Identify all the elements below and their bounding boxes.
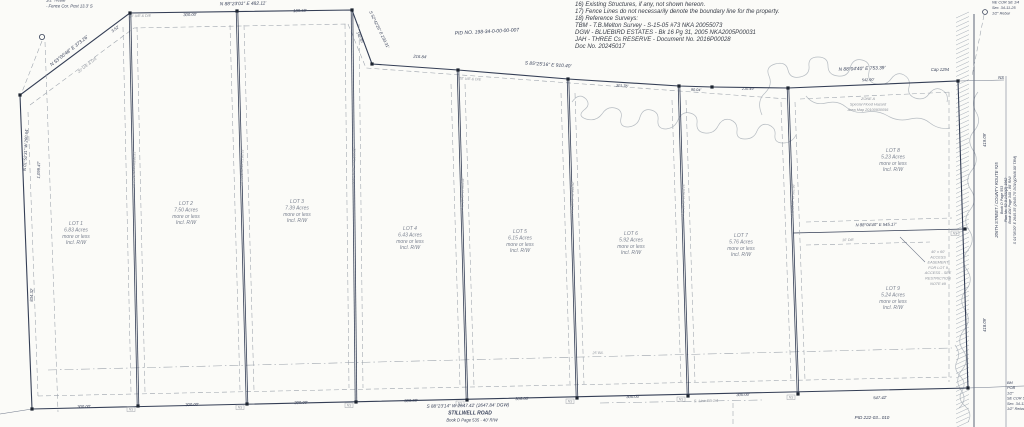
lot-label-lot-2: more or less: [172, 214, 200, 220]
survey-note-line: 17) Fence Lines do not necessarily denot…: [575, 9, 779, 15]
top-left-corner-note: - Fence Cor. Post 13.3' S: [46, 4, 93, 9]
corner-dot: [370, 62, 373, 65]
corner-dot: [963, 227, 966, 230]
lot-divider-line: [459, 70, 468, 400]
corner-dot: [566, 77, 569, 80]
lot-divider-line: [680, 86, 689, 396]
divider-bearing-label: N 01°36'46" W 1,161.21': [131, 151, 136, 188]
easement-label: 20' U/E & D/E: [76, 56, 98, 74]
monument-label: Cap 1294: [931, 67, 950, 72]
easement-dashed-lines: [28, 24, 952, 427]
ns-tag: NS: [129, 408, 134, 412]
survey-plat-canvas: PID NO. 198-34-0-00-00-007N 53°00'48" E …: [0, 0, 1024, 427]
building-line-label: 25' B/L: [591, 351, 603, 355]
ns-tag: NS: [679, 398, 684, 402]
plat-drawing: PID NO. 198-34-0-00-00-007N 53°00'48" E …: [0, 0, 1024, 427]
distance-label: 300.00': [404, 398, 418, 403]
lot-label-lot-9: more or less: [879, 299, 907, 305]
survey-note-line: JAH - THREE Cs RESERVE - Document No. 20…: [574, 37, 731, 43]
corner-dot: [710, 85, 713, 88]
bearing-north-line: S 85°25'16" E 910.40': [525, 60, 573, 69]
distance-label: 419.09': [982, 133, 987, 147]
generated-annotations: PID NO. 198-34-0-00-00-007N 53°00'48" E …: [18, 0, 1024, 423]
lot-label-lot-6: Incl. R/W: [621, 250, 643, 256]
distance-label: 300.00': [626, 394, 640, 399]
lot-label-lot-4: LOT 4: [403, 226, 417, 232]
corner-dot: [245, 402, 248, 405]
lot-divider-line: [457, 70, 466, 400]
lot-divider-line: [129, 13, 137, 406]
road-bottom-extension-left: [0, 409, 32, 414]
access-easement-note: EASEMENT: [928, 261, 950, 265]
ne-corner-monument-icon: [983, 10, 988, 15]
distance-label: 834.32': [29, 288, 34, 302]
lot-label-lot-5: Incl. R/W: [510, 248, 532, 254]
corner-dot: [354, 400, 357, 403]
lot-label-lot-7: more or less: [727, 246, 755, 252]
road-right-label: Book 404 Page 340 - 80' R/W: [1008, 176, 1012, 224]
access-easement-note: 40' x 60': [931, 250, 945, 254]
lot-label-lot-8: LOT 8: [886, 148, 900, 154]
access-easement-note: ACCESS: [929, 255, 946, 259]
corner-dot: [30, 407, 33, 410]
survey-note-line: TBM - T.B.Melton Survey - S-15-05 #73 NK…: [575, 23, 723, 29]
lot-label-lot-5: LOT 5: [513, 229, 527, 235]
top-right-corner-note: NE COR SE 1/4: [992, 1, 1019, 5]
corner-dot: [956, 79, 959, 82]
lot-label-lot-3: LOT 3: [290, 199, 304, 205]
pob-corner-note: 1/2": [1007, 391, 1014, 395]
ns-tag: NS: [789, 396, 794, 400]
corner-dot: [796, 392, 799, 395]
distance-label: 142.85': [355, 31, 364, 44]
easement-label: 20' U/E & D/E: [458, 76, 482, 81]
distance-label: 300.00': [294, 400, 308, 405]
divider-bearing-label: N 01°36'46" W 946.92': [570, 181, 575, 215]
lot-label-lot-6: more or less: [617, 244, 645, 250]
corner-dot: [686, 394, 689, 397]
lot-label-lot-8: 5.23 Acres: [881, 154, 905, 160]
lot-label-lot-7: Incl. R/W: [731, 252, 753, 258]
pob-corner-note: BM: [1007, 381, 1014, 385]
divider-bearing-label: N 01°36'46" W 1,168.53': [239, 149, 244, 186]
lot-label-lot-9: Incl. R/W: [883, 305, 905, 311]
divider-bearing-label: N 01°36'46" W 983.04': [460, 178, 465, 212]
lot-label-lot-9: LOT 9: [886, 286, 900, 292]
bearing-ne-diagonal: S 52°42'26" E 230.31': [368, 10, 390, 49]
corner-dot: [786, 86, 789, 89]
top-left-corner-note: 1/2" Rebar: [46, 0, 66, 3]
ns-tag: NS: [568, 400, 573, 404]
lot-divider-line: [567, 79, 576, 398]
top-right-corner-note: 1/2" Rebar: [992, 11, 1011, 15]
lot-label-lot-6: 5.92 Acres: [619, 237, 643, 243]
pob-corner-note: Sec. 34-11: [1007, 402, 1024, 406]
pob-corner-note: SE COR SE: [1007, 397, 1024, 401]
corner-dot: [456, 68, 459, 71]
road-bottom-extension-right: [968, 386, 1024, 388]
distance-label: 189.59': [293, 8, 307, 13]
survey-note-line: Doc No. 20245017: [575, 44, 626, 50]
corner-dot: [465, 398, 468, 401]
lot-label-lot-1: 6.83 Acres: [64, 227, 88, 233]
lot-label-lot-1: LOT 1: [69, 221, 83, 227]
lot-divider-line: [569, 79, 578, 398]
road-bottom-name: STILLWELL ROAD: [448, 411, 492, 417]
easement-label: 10' D/E: [842, 238, 854, 242]
flood-zone-note: ZONE A: [860, 97, 875, 101]
lot-label-lot-5: 6.15 Acres: [508, 235, 532, 241]
section-line-label: S. Line SE 1/4: [694, 399, 718, 403]
distance-label: 300.00': [736, 392, 750, 397]
lot-label-lot-2: LOT 2: [179, 201, 193, 207]
boundary-tie-line: [958, 80, 1004, 81]
distance-label: 300.00': [77, 404, 91, 409]
lot-label-lot-4: more or less: [396, 239, 424, 245]
corner-dot: [575, 396, 578, 399]
road-right-label: 206TH STREET / COUNTY ROUTE #25: [994, 162, 999, 239]
distance-label: 300.00': [515, 396, 529, 401]
access-easement-note: RESTRICTION: [925, 277, 951, 281]
bearing-nw-diagonal: N 53°00'48" E 373.26': [49, 34, 90, 68]
lot-divider-line: [236, 11, 246, 404]
top-right-corner-note: Sec. 34-11-25: [992, 6, 1016, 10]
lot-label-lot-9: 5.24 Acres: [881, 292, 905, 298]
lot-label-lot-7: 5.76 Acres: [729, 239, 753, 245]
lot-label-lot-2: 7.50 Acres: [174, 207, 198, 213]
ns-tag: NS: [347, 404, 352, 408]
lot-label-lot-1: Incl. R/W: [66, 240, 88, 246]
distance-label: 90.04': [691, 88, 702, 92]
survey-note-line: 18) Reference Surveys:: [575, 16, 638, 22]
corner-dot: [966, 386, 969, 389]
lot-label-lot-2: Incl. R/W: [176, 220, 198, 226]
distance-label: 216.84': [412, 54, 427, 60]
lot-divider-line: [238, 11, 248, 404]
lot-label-lot-1: more or less: [62, 234, 90, 240]
corner-dot: [136, 404, 139, 407]
lot-divider-line: [678, 86, 687, 396]
distance-label: 300.00': [185, 402, 199, 407]
flood-zone-note: Special Flood Hazard: [850, 102, 887, 106]
pid-bottom-label: PID 222-03...010: [855, 415, 890, 420]
bearing-west-line: N 01°52'31" W 260.64': [22, 129, 29, 171]
corner-dot: [128, 11, 131, 14]
ns-tag: NS: [238, 406, 243, 410]
distance-label: 301.76': [616, 84, 629, 89]
lot-label-lot-3: Incl. R/W: [287, 218, 309, 224]
lot-label-lot-5: more or less: [506, 242, 534, 248]
lot-label-lot-6: LOT 6: [624, 231, 638, 237]
lot-divider-line: [787, 88, 797, 394]
pob-corner-note: 1/2" Rebar: [1007, 407, 1024, 411]
corner-dot: [677, 84, 680, 87]
road-bottom-book: Book D Page 535 - 40' R/W: [446, 418, 498, 423]
lot8-lot9-divider: [793, 229, 965, 233]
distance-label: 3.52': [110, 24, 120, 33]
bearing-lot8-9-line: N 88°04'40" E 545.17': [856, 222, 897, 228]
pob-corner-note: POB: [1007, 386, 1015, 390]
corner-dot: [18, 93, 21, 96]
lot-label-lot-7: LOT 7: [734, 233, 748, 239]
bearing-north-line: N 88°23'01" E 482.11': [220, 1, 268, 8]
lot-label-lot-3: 7.39 Acres: [285, 205, 309, 211]
lot-label-lot-8: more or less: [879, 161, 907, 167]
distance-label: 300.00': [183, 12, 197, 17]
road-right-label: S 01°05'20" E 2645.35' (2645.75' DGW)(26…: [1013, 156, 1017, 244]
road-bottom-bearing: S 88°23'14" W 2647.42' (2647.84' DGW): [427, 402, 510, 408]
distance-label: 418.09': [982, 318, 987, 332]
access-easement-note: FOR LOT 9: [928, 266, 949, 270]
flood-zone-note: Area Map 20100930056: [847, 108, 890, 112]
lot-label-lot-4: 6.43 Acres: [398, 232, 422, 238]
lot-divider-line: [789, 88, 799, 394]
divider-bearing-label: N 01°36'46" W 902.66': [790, 184, 795, 218]
fence-corner-monument-icon: [39, 34, 44, 39]
access-easement-note: NOTE #9: [930, 282, 947, 286]
distance-label: 547.42': [873, 395, 887, 400]
pid-top-label: PID NO. 198-34-0-00-00-007: [455, 27, 520, 36]
survey-note-line: DGW - BLUEBIRD ESTATES - Bk 16 Pg 31, 20…: [575, 30, 756, 36]
lot-label-lot-8: Incl. R/W: [883, 167, 905, 173]
lot-label-lot-4: Incl. R/W: [400, 245, 422, 251]
distance-label: 542.90': [862, 78, 875, 82]
access-easement-note: ACCESS - SEE: [924, 271, 952, 275]
ns-tag: NS: [953, 232, 958, 236]
distance-label: 1,099.47': [36, 161, 42, 178]
section-line-dash: [45, 42, 58, 412]
divider-bearing-label: N 01°36'46" W 1,158.02': [351, 147, 356, 184]
monument-tie-dash: [22, 41, 42, 92]
survey-note-line: 16) Existing Structures, if any, not sho…: [575, 2, 705, 8]
corner-dot: [235, 9, 238, 12]
lot-divider-line: [131, 13, 139, 406]
divider-bearing-label: N 01°36'46" W 913.75': [681, 184, 686, 218]
corner-dot: [350, 8, 353, 11]
bearing-north-line: N 88°04'40" E 753.39': [838, 65, 886, 73]
distance-label: 210.49': [741, 87, 755, 91]
tract-boundary: [20, 10, 968, 409]
lot-label-lot-3: more or less: [283, 212, 311, 218]
monument-label: NS: [998, 75, 1004, 80]
